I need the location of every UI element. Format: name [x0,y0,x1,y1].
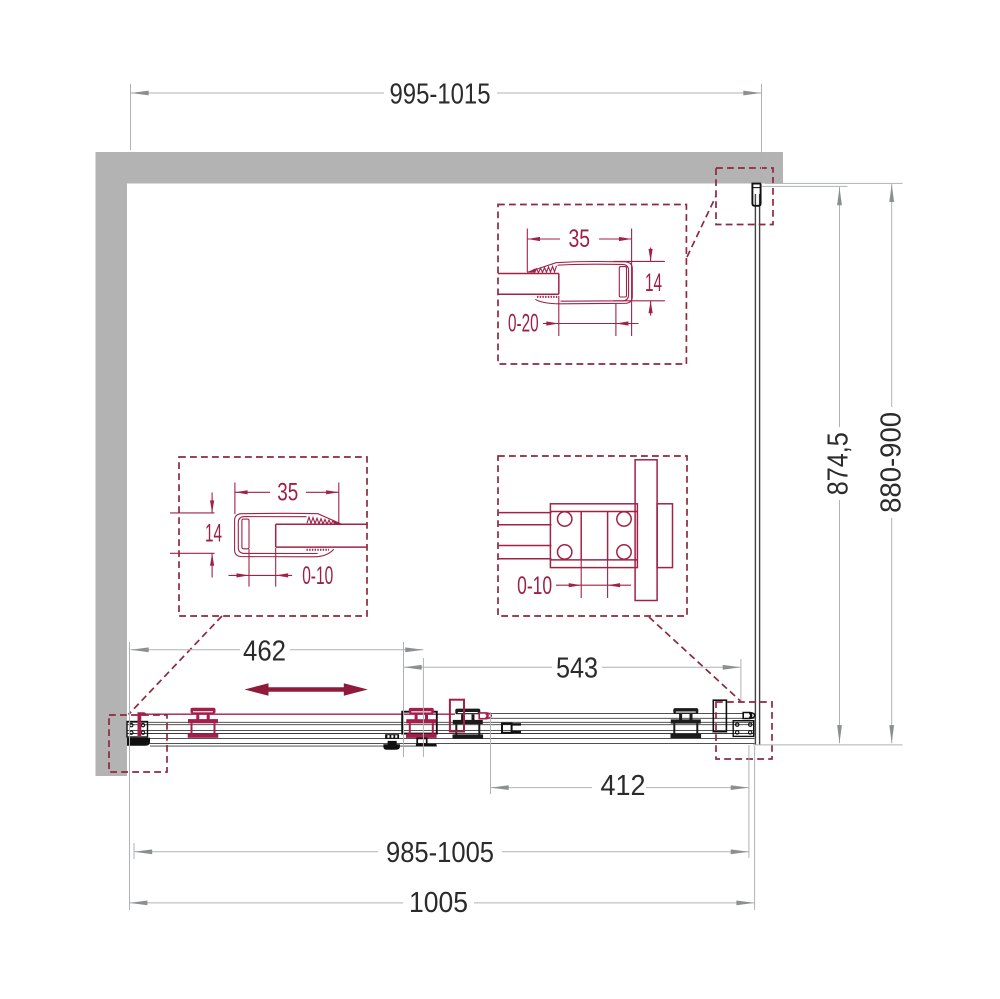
svg-text:462: 462 [243,635,286,667]
svg-text:880-900: 880-900 [876,412,908,513]
svg-text:0-10: 0-10 [517,572,552,600]
svg-text:985-1005: 985-1005 [386,837,494,869]
svg-text:35: 35 [569,225,591,253]
svg-text:0-20: 0-20 [508,310,539,338]
svg-text:1005: 1005 [409,887,468,919]
svg-text:412: 412 [601,770,646,802]
svg-text:874,5: 874,5 [822,432,854,495]
svg-text:14: 14 [205,519,222,547]
svg-text:35: 35 [277,479,298,507]
svg-text:995-1015: 995-1015 [390,79,491,111]
svg-text:14: 14 [645,269,662,297]
svg-text:0-10: 0-10 [302,562,333,590]
svg-text:543: 543 [556,653,598,685]
